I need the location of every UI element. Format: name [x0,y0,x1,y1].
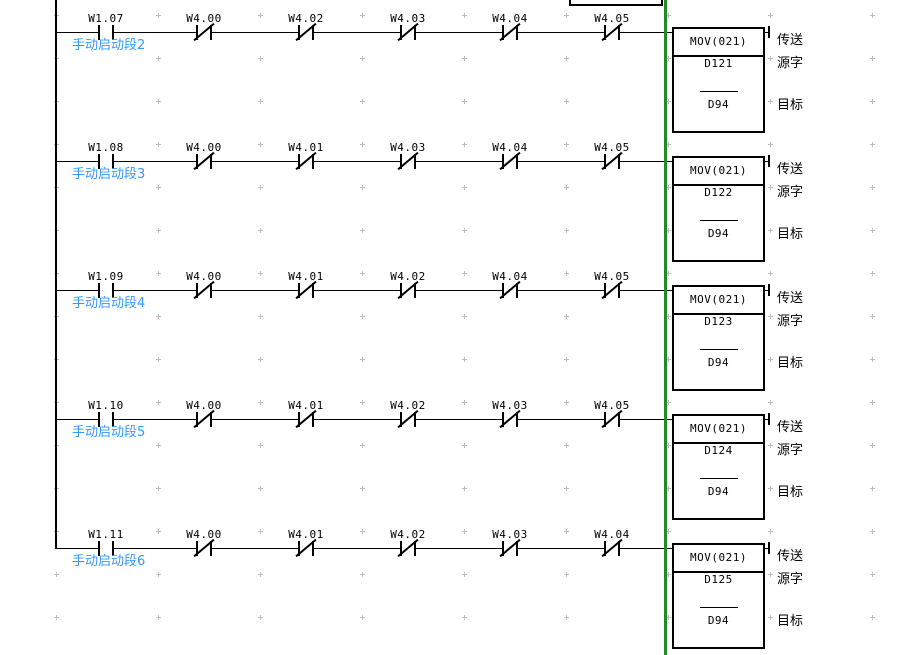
contact-address: W4.00 [179,399,229,412]
contact-address: W4.02 [383,528,433,541]
grid-dot [462,443,467,448]
grid-dot [768,142,773,147]
grid-dot [870,443,875,448]
contact-address: W4.01 [281,528,331,541]
instruction-source-operand: D124 [674,445,763,457]
grid-dot [564,400,569,405]
grid-dot [156,271,161,276]
grid-dot [870,228,875,233]
grid-dot [564,529,569,534]
contact-address: W4.05 [587,399,637,412]
contact-address: W4.01 [281,141,331,154]
contact-address: W4.03 [485,399,535,412]
grid-dot [870,400,875,405]
contact-address: W4.02 [383,399,433,412]
instruction-mnemonic: MOV(021) [674,545,763,573]
block-output-tick [768,284,770,296]
grid-dot [360,443,365,448]
rung-comment[interactable]: 手动启动段3 [72,168,145,182]
grid-dot [462,486,467,491]
instruction-source-operand: D122 [674,187,763,199]
annotation-title: 传送 [777,34,803,48]
grid-dot [564,228,569,233]
left-power-rail [55,0,57,549]
grid-dot [870,357,875,362]
rung-wire [56,290,672,291]
grid-dot [156,443,161,448]
grid-dot [156,185,161,190]
grid-dot [768,271,773,276]
instruction-source-operand: D125 [674,574,763,586]
grid-dot [258,443,263,448]
grid-dot [360,486,365,491]
contact-address: W4.04 [485,141,535,154]
grid-dot [768,486,773,491]
grid-dot [360,529,365,534]
rung-comment[interactable]: 手动启动段4 [72,297,145,311]
contact-address: W4.05 [587,141,637,154]
grid-dot [564,615,569,620]
grid-dot [258,572,263,577]
grid-dot [564,13,569,18]
grid-dot [564,185,569,190]
grid-dot [870,185,875,190]
annotation-title: 传送 [777,292,803,306]
grid-dot [564,314,569,319]
grid-dot [768,228,773,233]
grid-dot [462,572,467,577]
contact-gap [100,32,112,33]
contact-address: W1.08 [81,141,131,154]
grid-dot [258,271,263,276]
grid-dot [768,56,773,61]
contact-address: W4.00 [179,12,229,25]
instruction-mnemonic: MOV(021) [674,158,763,186]
instruction-mnemonic: MOV(021) [674,416,763,444]
annotation-source: 源字 [777,573,803,587]
grid-dot [360,56,365,61]
rung-wire [56,548,672,549]
grid-dot [258,357,263,362]
grid-dot [54,572,59,577]
grid-dot [258,13,263,18]
grid-dot [258,486,263,491]
grid-dot [462,13,467,18]
grid-dot [768,615,773,620]
grid-dot [360,400,365,405]
grid-dot [768,443,773,448]
rung-wire [56,419,672,420]
grid-dot [768,185,773,190]
grid-dot [870,529,875,534]
grid-dot [768,99,773,104]
contact-address: W4.05 [587,12,637,25]
grid-dot [768,13,773,18]
grid-dot [258,185,263,190]
rung-comment[interactable]: 手动启动段6 [72,555,145,569]
contact-address: W4.03 [383,141,433,154]
contact-address: W4.01 [281,399,331,412]
annotation-title: 传送 [777,421,803,435]
rung-comment[interactable]: 手动启动段2 [72,39,145,53]
contact-address: W1.10 [81,399,131,412]
annotation-source: 源字 [777,186,803,200]
contact-address: W1.07 [81,12,131,25]
contact-address: W4.04 [485,270,535,283]
grid-dot [54,615,59,620]
grid-dot [462,228,467,233]
instruction-block[interactable]: MOV(021) D124 D94 [672,414,765,520]
grid-dot [870,314,875,319]
grid-dot [870,271,875,276]
grid-dot [564,486,569,491]
grid-dot [870,56,875,61]
grid-dot [156,615,161,620]
contact-gap [100,419,112,420]
block-output-tick [768,26,770,38]
contact-address: W1.09 [81,270,131,283]
contact-address: W4.00 [179,270,229,283]
contact-address: W4.03 [485,528,535,541]
grid-dot [870,142,875,147]
grid-dot [870,572,875,577]
grid-dot [462,271,467,276]
rung-wire [56,161,672,162]
grid-dot [870,99,875,104]
contact-gap [100,548,112,549]
instruction-block[interactable]: MOV(021) D122 D94 [672,156,765,262]
grid-dot [360,271,365,276]
grid-dot [156,13,161,18]
grid-dot [564,271,569,276]
instruction-dest-operand: D94 [674,357,763,369]
annotation-source: 源字 [777,57,803,71]
ladder-editor-canvas: W1.07 W4.00 W4.02 W4.03 W4. [0,0,921,655]
grid-dot [156,400,161,405]
grid-dot [258,228,263,233]
instruction-mnemonic: MOV(021) [674,287,763,315]
contact-address: W4.04 [485,12,535,25]
grid-dot [156,572,161,577]
grid-dot [870,615,875,620]
block-output-tick [768,413,770,425]
instruction-dest-operand: D94 [674,228,763,240]
annotation-source: 源字 [777,315,803,329]
grid-dot [258,615,263,620]
annotation-source: 源字 [777,444,803,458]
grid-dot [156,56,161,61]
contact-address: W4.00 [179,528,229,541]
instruction-dest-operand: D94 [674,615,763,627]
grid-dot [564,357,569,362]
grid-dot [156,486,161,491]
instruction-source-operand: D123 [674,316,763,328]
contact-address: W4.02 [383,270,433,283]
instruction-block[interactable]: MOV(021) D123 D94 [672,285,765,391]
grid-dot [360,13,365,18]
annotation-dest: 目标 [777,486,803,500]
grid-dot [462,99,467,104]
contact-gap [100,290,112,291]
grid-dot [462,142,467,147]
grid-dot [360,142,365,147]
grid-dot [156,228,161,233]
grid-dot [462,314,467,319]
grid-dot [768,314,773,319]
annotation-title: 传送 [777,163,803,177]
instruction-mnemonic: MOV(021) [674,29,763,57]
grid-dot [258,142,263,147]
contact-address: W4.05 [587,270,637,283]
grid-dot [258,56,263,61]
annotation-dest: 目标 [777,357,803,371]
grid-dot [360,99,365,104]
contact-address: W4.01 [281,270,331,283]
grid-dot [564,56,569,61]
instruction-block[interactable]: MOV(021) D125 D94 [672,543,765,649]
previous-rung-block-fragment [569,0,663,6]
grid-dot [258,99,263,104]
grid-dot [360,228,365,233]
grid-dot [462,615,467,620]
instruction-dest-operand: D94 [674,486,763,498]
grid-dot [870,486,875,491]
rung-wire [56,32,672,33]
grid-dot [156,529,161,534]
contact-address: W1.11 [81,528,131,541]
grid-dot [360,357,365,362]
contact-address: W4.02 [281,12,331,25]
annotation-dest: 目标 [777,615,803,629]
grid-dot [360,572,365,577]
grid-dot [564,443,569,448]
block-output-tick [768,155,770,167]
rung-comment[interactable]: 手动启动段5 [72,426,145,440]
instruction-block[interactable]: MOV(021) D121 D94 [672,27,765,133]
grid-dot [258,400,263,405]
section-divider-line [664,0,667,655]
instruction-dest-operand: D94 [674,99,763,111]
contact-address: W4.04 [587,528,637,541]
grid-dot [768,529,773,534]
operand-overline [700,478,738,479]
operand-overline [700,91,738,92]
grid-dot [156,357,161,362]
annotation-dest: 目标 [777,99,803,113]
grid-dot [360,314,365,319]
grid-dot [156,99,161,104]
operand-overline [700,220,738,221]
operand-overline [700,349,738,350]
grid-dot [360,615,365,620]
operand-overline [700,607,738,608]
block-output-tick [768,542,770,554]
grid-dot [156,142,161,147]
grid-dot [258,529,263,534]
grid-dot [564,572,569,577]
grid-dot [156,314,161,319]
grid-dot [462,400,467,405]
contact-gap [100,161,112,162]
grid-dot [462,529,467,534]
grid-dot [564,142,569,147]
instruction-source-operand: D121 [674,58,763,70]
grid-dot [564,99,569,104]
grid-dot [462,56,467,61]
annotation-dest: 目标 [777,228,803,242]
contact-address: W4.00 [179,141,229,154]
contact-address: W4.03 [383,12,433,25]
annotation-title: 传送 [777,550,803,564]
grid-dot [258,314,263,319]
grid-dot [360,185,365,190]
grid-dot [462,185,467,190]
grid-dot [870,13,875,18]
grid-dot [768,572,773,577]
grid-dot [768,357,773,362]
grid-dot [462,357,467,362]
grid-dot [768,400,773,405]
